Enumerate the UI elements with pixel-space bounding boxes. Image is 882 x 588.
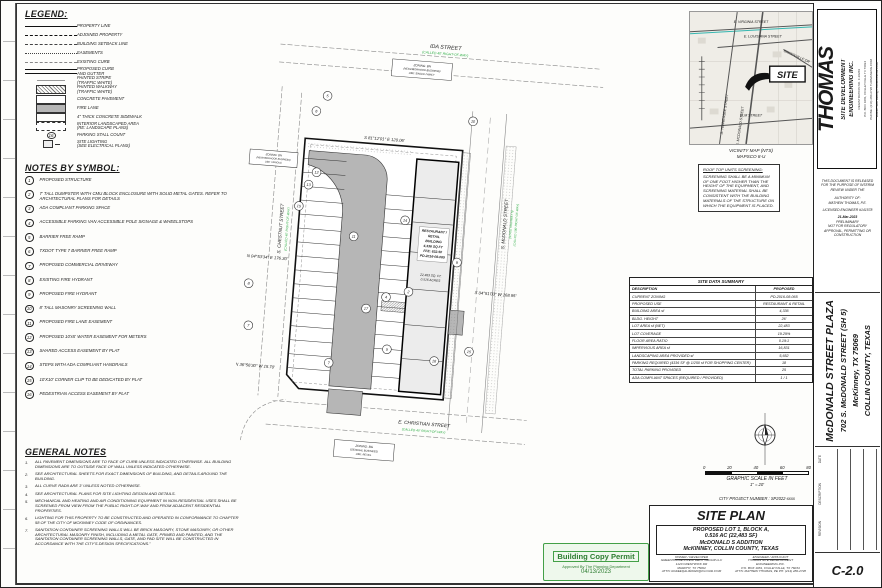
note-number-circle: 11 bbox=[25, 319, 34, 328]
legend-label: EXISTING CURB bbox=[77, 60, 110, 65]
site-data-header-row: DESCRIPTION PROPOSED bbox=[630, 286, 812, 293]
site-data-row: IMPERVIOUS AREA sf 16,831 bbox=[630, 345, 812, 352]
far-parkway-strip bbox=[485, 146, 516, 414]
driveway-south bbox=[327, 389, 363, 416]
site-data-label: BLDG. HEIGHT bbox=[630, 316, 756, 322]
scale-ratio: 1" = 20' bbox=[701, 482, 813, 487]
bearing-north: S 81°12'01" E 120.06' bbox=[364, 135, 405, 143]
roof-units-note: ROOF TOP UNITS SCREENING: SCREENING SHAL… bbox=[698, 164, 780, 212]
title-strip: THOMAS SITE DEVELOPMENT ENGINEERING INC.… bbox=[813, 3, 881, 587]
site-data-col-description: DESCRIPTION bbox=[630, 286, 756, 292]
note-text: PEDESTRIAN ACCESS EASEMENT BY PLAT bbox=[40, 390, 129, 396]
note-number-circle: 16 bbox=[25, 390, 34, 399]
general-note-number: 7. bbox=[25, 528, 35, 533]
release-line: LICENSED ENGINEER #141578 bbox=[815, 208, 880, 212]
note-item: 2 7' TALL DUMPSTER WITH CMU BLOCK ENCLOS… bbox=[25, 190, 233, 204]
note-number-circle: 12 bbox=[25, 333, 34, 342]
note-text: BARRIER FREE RAMP bbox=[40, 233, 85, 239]
legend-symbol: 16 bbox=[25, 131, 77, 140]
general-note-item: 6. LIGHTING FOR THIS PROPERTY TO BE CONS… bbox=[25, 516, 243, 525]
note-text: PROPOSED STRUCTURE bbox=[40, 176, 92, 182]
site-data-value: 1 / 1 bbox=[756, 376, 812, 380]
note-text: 10'X10' CORNER CLIP TO BE DEDICATED BY P… bbox=[40, 376, 143, 382]
note-number-circle: 2 bbox=[25, 190, 34, 199]
site-data-value: 25 bbox=[756, 368, 812, 372]
legend-symbol bbox=[25, 31, 77, 40]
note-text: ACCESSIBLE PARKING VAN ACCESSIBLE POLE S… bbox=[40, 219, 193, 225]
firm-name: THOMAS bbox=[815, 47, 839, 132]
site-data-label: TOTAL PARKING PROVIDED bbox=[630, 367, 756, 373]
legend-symbol bbox=[25, 95, 77, 104]
note-item: 11 PROPOSED FIRE LANE EASEMENT bbox=[25, 319, 233, 333]
legend-item: PROPOSED CURB AND GUTTER bbox=[25, 67, 230, 76]
note-item: 6 TXDOT TYPE 7 BARRIER FREE RAMP bbox=[25, 247, 233, 261]
sheet-number: C-2.0 bbox=[815, 555, 880, 585]
note-number-circle: 8 bbox=[25, 276, 34, 285]
note-number-circle: 15 bbox=[25, 376, 34, 385]
site-data-row: BLDG. HEIGHT 26' bbox=[630, 316, 812, 323]
general-notes: GENERAL NOTES 1. ALL PAVEMENT DIMENSIONS… bbox=[25, 447, 243, 549]
site-data-title: SITE DATA SUMMARY bbox=[630, 278, 812, 286]
site-data-label: LOT COVERAGE bbox=[630, 330, 756, 336]
project-title-block: McDONALD STREET PLAZA 702 S. McDONALD ST… bbox=[815, 295, 880, 447]
note-number-circle: 10 bbox=[25, 305, 34, 314]
legend-label: PROPERTY LINE bbox=[77, 24, 110, 29]
legend-list: PROPERTY LINE ADJOINED PROPERTY BUILDING… bbox=[25, 22, 230, 149]
site-data-value: 5,652 bbox=[756, 354, 812, 358]
site-data-label: CURRENT ZONING bbox=[630, 293, 756, 299]
site-data-value: 4,336 bbox=[756, 309, 812, 313]
site-data-value: 22,483 bbox=[756, 324, 812, 328]
svg-text:4: 4 bbox=[385, 295, 387, 299]
note-text: TXDOT TYPE 7 BARRIER FREE RAMP bbox=[40, 247, 117, 253]
note-text: PROPOSED FIRE HYDRANT bbox=[40, 290, 97, 296]
north-arrow bbox=[745, 413, 785, 465]
site-data-value: 16,831 bbox=[756, 346, 812, 350]
note-item: 12 PROPOSED 10'x5' WATER EASEMENT FOR ME… bbox=[25, 333, 233, 347]
legend-item: EASEMENTS bbox=[25, 49, 230, 58]
general-note-item: 3. ALL CURVE RADII ARE 3' UNLESS NOTED O… bbox=[25, 484, 243, 489]
note-text: 8' TALL MASONRY SCREENING WALL bbox=[40, 305, 117, 311]
legend-item: BUILDING SETBACK LINE bbox=[25, 40, 230, 49]
note-text: PROPOSED FIRE LANE EASEMENT bbox=[40, 319, 113, 325]
legend-label: CONCRETE PAVEMENT bbox=[77, 97, 124, 102]
legend-label: BUILDING SETBACK LINE bbox=[77, 42, 128, 47]
legend-item: CONCRETE PAVEMENT bbox=[25, 95, 230, 104]
site-data-row: CURRENT ZONING PD-2016-08-065 bbox=[630, 293, 812, 300]
bearing-west: N 04°53'34" E 176.30' bbox=[247, 253, 288, 261]
stamp-date: 04/13/2023 bbox=[544, 569, 648, 575]
legend: LEGEND: PROPERTY LINE ADJOINED PROPERTY … bbox=[25, 9, 230, 149]
note-number-circle: 1 bbox=[25, 176, 34, 185]
note-item: 8 EXISTING FIRE HYDRANT bbox=[25, 276, 233, 290]
notes-by-symbol-list: 1 PROPOSED STRUCTURE 2 7' TALL DUMPSTER … bbox=[25, 176, 233, 404]
note-text: 7' TALL DUMPSTER WITH CMU BLOCK ENCLOSUR… bbox=[40, 190, 234, 201]
painted-walkway bbox=[381, 301, 406, 313]
note-text: ADA COMPLIANT PARKING SPACE bbox=[40, 205, 111, 211]
vicinity-caption: VICINITY MAP (NTS) MAPSCO 8-U bbox=[689, 148, 813, 159]
general-note-text: ALL CURVE RADII ARE 3' UNLESS NOTED OTHE… bbox=[35, 484, 141, 489]
svg-text:E. LOUISIANA STREET: E. LOUISIANA STREET bbox=[744, 35, 783, 39]
legend-symbol bbox=[25, 67, 77, 76]
svg-text:(CALLED 40' RIGHT-OF-WAY): (CALLED 40' RIGHT-OF-WAY) bbox=[283, 207, 290, 251]
roof-note-title: ROOF TOP UNITS SCREENING: bbox=[703, 168, 775, 173]
bearing-southwest: N 36°56'30" W 15.70' bbox=[236, 361, 275, 369]
legend-symbol bbox=[25, 40, 77, 49]
general-note-text: SANITATION CONTAINER SCREENING WALLS WIL… bbox=[35, 528, 243, 547]
legend-symbol bbox=[25, 122, 77, 131]
site-data-value: 26' bbox=[756, 317, 812, 321]
revision-col-date: DATE bbox=[818, 455, 822, 463]
general-note-text: LIGHTING FOR THIS PROPERTY TO BE CONSTRU… bbox=[35, 516, 243, 525]
lot-area-label: 22,483 SQ. FT. 0.516 ACRES bbox=[419, 273, 443, 283]
site-data-label: PARKING REQUIRED (4336 SF @ 1/250 sf FOR… bbox=[630, 360, 756, 366]
release-line: REVIEW UNDER THE bbox=[815, 188, 880, 192]
note-item: 4 ACCESSIBLE PARKING VAN ACCESSIBLE POLE… bbox=[25, 219, 233, 233]
note-number-circle: 9 bbox=[25, 290, 34, 299]
note-number-circle: 13 bbox=[25, 348, 34, 357]
roof-note-body: SCREENING SHALL BE A MINIMUM OF ONE FOOT… bbox=[703, 175, 775, 209]
general-note-text: ALL PAVEMENT DIMENSIONS ARE TO FACE OF C… bbox=[35, 460, 243, 469]
site-data-row: LOT AREA sf (NET) 22,483 bbox=[630, 323, 812, 330]
legend-label: EASEMENTS bbox=[77, 51, 103, 56]
general-note-item: 7. SANITATION CONTAINER SCREENING WALLS … bbox=[25, 528, 243, 547]
site-data-label: BUILDING AREA sf bbox=[630, 308, 756, 314]
site-data-label: FLOOR AREA RATIO bbox=[630, 338, 756, 344]
note-number-circle: 14 bbox=[25, 362, 34, 371]
legend-label: SITE LIGHTING (SEE ELECTRICAL PLANS) bbox=[77, 140, 130, 149]
site-data-rows: CURRENT ZONING PD-2016-08-065 PROPOSED U… bbox=[630, 293, 812, 382]
general-note-number: 1. bbox=[25, 460, 35, 465]
site-data-row: BUILDING AREA sf 4,336 bbox=[630, 308, 812, 315]
stamp-title: Building Copy Permit bbox=[553, 551, 638, 562]
general-note-text: SEE ARCHITECTURAL PLANS FOR SITE LIGHTIN… bbox=[35, 492, 176, 497]
note-item: 1 PROPOSED STRUCTURE bbox=[25, 176, 233, 190]
parking-count-badge: 16 bbox=[47, 132, 56, 139]
note-item: 10 8' TALL MASONRY SCREENING WALL bbox=[25, 305, 233, 319]
note-item: 15 10'X10' CORNER CLIP TO BE DEDICATED B… bbox=[25, 376, 233, 390]
scale-bar bbox=[705, 471, 809, 475]
legend-title: LEGEND: bbox=[25, 9, 230, 19]
note-number-circle: 4 bbox=[25, 219, 34, 228]
legend-label: INTERIOR LANDSCAPED AREA (RE: LANDSCAPE … bbox=[77, 122, 139, 131]
vicinity-map: SITE E. VIRGINIA STREET E. LOUISIANA STR… bbox=[689, 11, 813, 145]
note-number-circle: 7 bbox=[25, 262, 34, 271]
site-data-label: IMPERVIOUS AREA sf bbox=[630, 345, 756, 351]
legend-item: PROPERTY LINE bbox=[25, 22, 230, 31]
legend-symbol bbox=[25, 85, 77, 94]
general-note-number: 4. bbox=[25, 492, 35, 497]
legend-item: 16 PARKING STALL COUNT bbox=[25, 131, 230, 140]
legend-symbol bbox=[25, 49, 77, 58]
note-item: 13 SHARED ACCESS EASEMENT BY PLAT bbox=[25, 348, 233, 362]
general-note-number: 3. bbox=[25, 484, 35, 489]
general-note-item: 1. ALL PAVEMENT DIMENSIONS ARE TO FACE O… bbox=[25, 460, 243, 469]
svg-text:(CALLED 40' RIGHT-OF-WAY): (CALLED 40' RIGHT-OF-WAY) bbox=[422, 50, 469, 58]
svg-text:11: 11 bbox=[352, 235, 356, 239]
general-note-number: 6. bbox=[25, 516, 35, 521]
city-project-number: CITY PROJECT NUMBER : SP2022-xxxx bbox=[701, 496, 813, 501]
site-data-value: 19.29% bbox=[756, 332, 812, 336]
general-note-item: 2. SEE ARCHITECTURAL SHEETS FOR EXACT DI… bbox=[25, 472, 243, 481]
note-item: 9 PROPOSED FIRE HYDRANT bbox=[25, 290, 233, 304]
site-data-label: ADA COMPLIANT SPACES (REQUIRED / PROVIDE… bbox=[630, 375, 756, 382]
general-note-item: 5. MECHANICAL AND HEATING AND AIR CONDIT… bbox=[25, 499, 243, 513]
site-data-value: RESTAURANT & RETAIL bbox=[756, 302, 812, 306]
note-text: EXISTING FIRE HYDRANT bbox=[40, 276, 93, 282]
legend-label: FIRE LANE bbox=[77, 106, 99, 111]
svg-text:14: 14 bbox=[403, 219, 408, 223]
site-data-row: ADA COMPLIANT SPACES (REQUIRED / PROVIDE… bbox=[630, 375, 812, 382]
svg-text:SITE: SITE bbox=[777, 70, 799, 80]
note-text: PROPOSED COMMERCIAL DRIVEWAY bbox=[40, 262, 118, 268]
firm-logo-block: THOMAS SITE DEVELOPMENT ENGINEERING INC.… bbox=[817, 9, 877, 169]
note-text: PROPOSED 10'x5' WATER EASEMENT FOR METER… bbox=[40, 333, 147, 339]
site-data-label: LANDSCAPING AREA PROVIDED sf bbox=[630, 353, 756, 359]
general-note-number: 2. bbox=[25, 472, 35, 477]
building-permit-stamp: Building Copy Permit Approved By The Pla… bbox=[543, 543, 649, 581]
revision-col-revision: REVISION bbox=[818, 521, 822, 536]
site-data-col-proposed: PROPOSED bbox=[756, 287, 812, 291]
site-data-value: PD-2016-08-065 bbox=[756, 295, 812, 299]
notes-by-symbol-title: NOTES BY SYMBOL: bbox=[25, 163, 233, 173]
plan-sheet: LEGEND: PROPERTY LINE ADJOINED PROPERTY … bbox=[0, 0, 882, 588]
legend-symbol bbox=[25, 58, 77, 67]
firm-address: P.O. BOX 1081, COLLEYVILLE TX 76034 bbox=[863, 61, 867, 117]
legend-item: PAINTED WALKWAY (TRAFFIC WHITE) bbox=[25, 85, 230, 94]
site-data-row: LOT COVERAGE 19.29% bbox=[630, 330, 812, 337]
legend-item: PAINTED STRIPE (TRAFFIC WHITE) bbox=[25, 76, 230, 85]
legend-label: 4" THICK CONCRETE SIDEWALK bbox=[77, 115, 142, 120]
legend-item: SITE LIGHTING (SEE ELECTRICAL PLANS) bbox=[25, 140, 230, 149]
svg-text:E. VIRGINIA STREET: E. VIRGINIA STREET bbox=[734, 20, 769, 24]
note-number-circle: 6 bbox=[25, 247, 34, 256]
site-data-table: SITE DATA SUMMARY DESCRIPTION PROPOSED C… bbox=[629, 277, 813, 383]
site-plan-drawing: RESTAURANT / RETAIL BUILDING 4,336 SQ FT… bbox=[236, 9, 646, 581]
site-data-row: PROPOSED USE RESTAURANT & RETAIL bbox=[630, 301, 812, 308]
firm-tagline-1: SITE DEVELOPMENT bbox=[841, 59, 847, 120]
project-address: 702 S. McDONALD STREET (SH 5) bbox=[839, 309, 848, 432]
zoning-box-south: ZONING: BG (GENERAL BUSINESS) USE: RETAI… bbox=[333, 439, 394, 461]
note-item: 14 STEPS WITH ADA COMPLIANT HANDRAILS bbox=[25, 362, 233, 376]
legend-symbol bbox=[25, 113, 77, 122]
site-data-value: 18 bbox=[756, 361, 812, 365]
project-county: COLLIN COUNTY, TEXAS bbox=[863, 325, 872, 416]
notes-by-symbol: NOTES BY SYMBOL: 1 PROPOSED STRUCTURE 2 … bbox=[25, 163, 233, 405]
graphic-scale: 020406080 GRAPHIC SCALE IN FEET 1" = 20' bbox=[701, 465, 813, 487]
firm-email: EMAIL: MATHEW@THOMAS-ENG.COM bbox=[875, 62, 879, 117]
release-line: CONSTRUCTION bbox=[815, 233, 880, 237]
site-data-value: 0.19:1 bbox=[756, 339, 812, 343]
general-note-number: 5. bbox=[25, 499, 35, 504]
title-block: SITE PLAN PROPOSED LOT 1, BLOCK A, 0.516… bbox=[649, 505, 813, 582]
scale-ticks: 020406080 bbox=[701, 465, 813, 470]
legend-symbol bbox=[25, 104, 77, 113]
site-data-label: LOT AREA sf (NET) bbox=[630, 323, 756, 329]
drawing-subtitle: PROPOSED LOT 1, BLOCK A, 0.516 AC (22,48… bbox=[656, 525, 806, 555]
legend-label: PAINTED WALKWAY (TRAFFIC WHITE) bbox=[77, 85, 117, 94]
engineer-applicant-block: ENGINEER / APPLICANT THOMAS SITE DEVELOP… bbox=[731, 556, 810, 575]
drawing-title: SITE PLAN bbox=[650, 506, 812, 524]
legend-label: PARKING STALL COUNT bbox=[77, 133, 125, 138]
interim-release-note: THIS DOCUMENT IS RELEASEDFOR THE PURPOSE… bbox=[815, 175, 880, 293]
zoning-box-north: ZONING: BN (NEIGHBORHOOD BUSINESS) USE: … bbox=[391, 59, 452, 81]
revision-col-description: DESCRIPTION bbox=[818, 483, 822, 505]
note-item: 3 ADA COMPLIANT PARKING SPACE bbox=[25, 205, 233, 219]
general-notes-title: GENERAL NOTES bbox=[25, 447, 243, 457]
firm-tagline-2: ENGINEERING INC. bbox=[849, 61, 855, 117]
note-number-circle: 3 bbox=[25, 205, 34, 214]
revision-table: DATE DESCRIPTION REVISION bbox=[815, 447, 880, 553]
legend-label: ADJOINED PROPERTY bbox=[77, 33, 122, 38]
general-notes-list: 1. ALL PAVEMENT DIMENSIONS ARE TO FACE O… bbox=[25, 460, 243, 547]
svg-text:ELM STREET: ELM STREET bbox=[740, 113, 763, 117]
note-item: 7 PROPOSED COMMERCIAL DRIVEWAY bbox=[25, 262, 233, 276]
site-data-label: PROPOSED USE bbox=[630, 301, 756, 307]
project-city: McKinney, TX 75069 bbox=[851, 334, 860, 407]
zoning-box-west: ZONING: BN (NEIGHBORHOOD BUSINESS) USE: … bbox=[249, 149, 298, 168]
owner-developer-block: OWNER / DEVELOPER GREENHOUSE INVESTMENT … bbox=[652, 556, 731, 575]
legend-item: ADJOINED PROPERTY bbox=[25, 31, 230, 40]
general-note-item: 4. SEE ARCHITECTURAL PLANS FOR SITE LIGH… bbox=[25, 492, 243, 497]
firm-phone: PHONE: (214) 280-2728 THOMASENG.COM bbox=[869, 59, 873, 120]
note-item: 16 PEDESTRIAN ACCESS EASEMENT BY PLAT bbox=[25, 390, 233, 404]
site-data-row: LANDSCAPING AREA PROVIDED sf 5,652 bbox=[630, 353, 812, 360]
firm-registration: REGISTRATION NO. F-10269 bbox=[857, 69, 861, 109]
legend-symbol bbox=[25, 140, 77, 149]
general-note-text: MECHANICAL AND HEATING AND AIR CONDITION… bbox=[35, 499, 243, 513]
note-number-circle: 5 bbox=[25, 233, 34, 242]
legend-item: FIRE LANE bbox=[25, 104, 230, 113]
note-text: SHARED ACCESS EASEMENT BY PLAT bbox=[40, 348, 120, 354]
release-line: MATHEW THOMAS, P.E. bbox=[815, 201, 880, 205]
site-data-row: PARKING REQUIRED (4336 SF @ 1/250 sf FOR… bbox=[630, 360, 812, 367]
sheet-left-margin-strip bbox=[3, 3, 16, 585]
legend-item: INTERIOR LANDSCAPED AREA (RE: LANDSCAPE … bbox=[25, 122, 230, 131]
site-data-row: FLOOR AREA RATIO 0.19:1 bbox=[630, 338, 812, 345]
site-data-row: TOTAL PARKING PROVIDED 25 bbox=[630, 367, 812, 374]
legend-symbol bbox=[25, 22, 77, 31]
legend-symbol bbox=[25, 76, 77, 85]
legend-item: EXISTING CURB bbox=[25, 58, 230, 67]
note-text: STEPS WITH ADA COMPLIANT HANDRAILS bbox=[40, 362, 128, 368]
svg-text:(CALLED 100' RIGHT-OF-WAY): (CALLED 100' RIGHT-OF-WAY) bbox=[512, 204, 519, 247]
note-item: 5 BARRIER FREE RAMP bbox=[25, 233, 233, 247]
general-note-text: SEE ARCHITECTURAL SHEETS FOR EXACT DIMEN… bbox=[35, 472, 243, 481]
project-name: McDONALD STREET PLAZA bbox=[824, 300, 836, 442]
